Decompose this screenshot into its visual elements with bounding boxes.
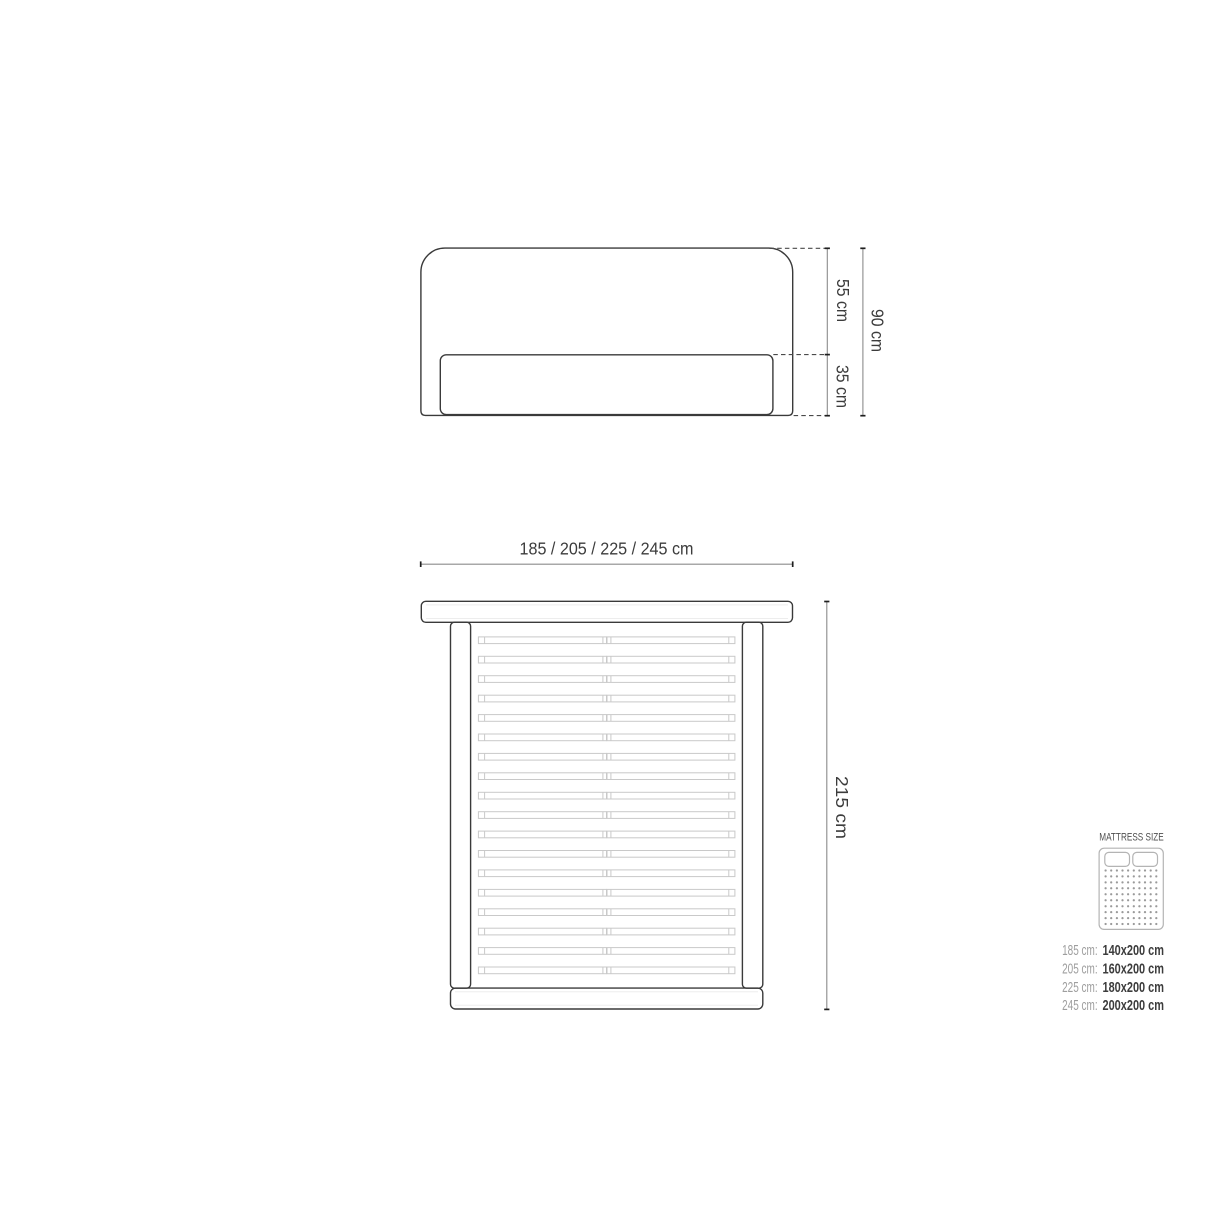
svg-text:55 cm: 55 cm: [833, 279, 853, 322]
svg-text:185 / 205 / 225 / 245 cm: 185 / 205 / 225 / 245 cm: [520, 539, 694, 559]
svg-text:185 cm:: 185 cm:: [1062, 943, 1098, 959]
svg-text:225 cm:: 225 cm:: [1062, 980, 1098, 996]
svg-text:MATTRESS SIZE: MATTRESS SIZE: [1099, 831, 1164, 843]
svg-text:215 cm: 215 cm: [832, 776, 852, 839]
svg-text:200x200 cm: 200x200 cm: [1103, 998, 1165, 1014]
svg-text:160x200 cm: 160x200 cm: [1103, 962, 1165, 978]
svg-text:245 cm:: 245 cm:: [1062, 998, 1098, 1014]
svg-text:35 cm: 35 cm: [833, 365, 853, 408]
svg-text:90 cm: 90 cm: [868, 309, 888, 352]
svg-text:180x200 cm: 180x200 cm: [1103, 980, 1165, 996]
svg-text:140x200 cm: 140x200 cm: [1103, 943, 1165, 959]
svg-text:205 cm:: 205 cm:: [1062, 962, 1098, 978]
